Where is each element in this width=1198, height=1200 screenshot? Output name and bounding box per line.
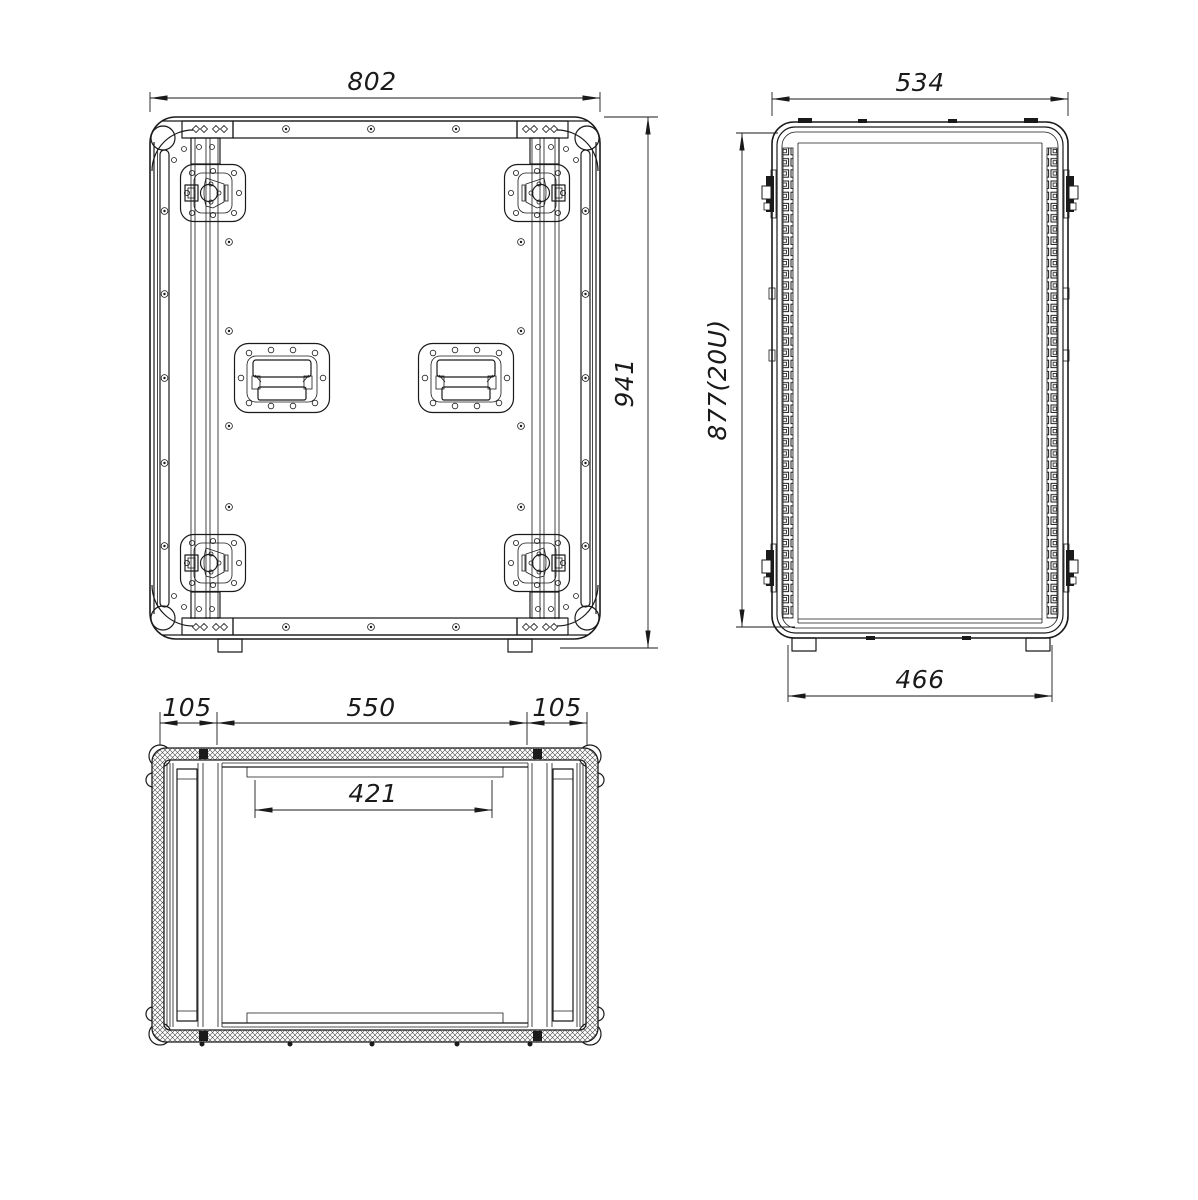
ball-corner-top-right: [517, 121, 599, 171]
side-latch-right-bottom: [1064, 544, 1078, 592]
dim-front-height: 941: [560, 117, 658, 648]
ball-corner-top-left: [151, 121, 233, 171]
ball-corner-bottom-right: [517, 585, 599, 635]
side-foot-right: [1026, 638, 1050, 651]
dim-text-top-rail-span: 421: [348, 779, 397, 808]
dim-side-width: 534: [772, 68, 1068, 116]
front-closure-strips: [191, 138, 559, 619]
recessed-handle-left: [235, 344, 330, 413]
dim-side-height: 877(20U): [703, 133, 795, 627]
front-foot-left: [218, 639, 242, 652]
rack-rail-left: [783, 148, 793, 618]
dim-side-foot-span: 466: [788, 645, 1052, 702]
butterfly-latch-top-left: [181, 165, 246, 222]
dim-text-front-height: 941: [610, 358, 639, 407]
dim-text-side-foot-span: 466: [895, 665, 944, 694]
side-latch-left-top: [762, 170, 776, 218]
recessed-handle-right: [419, 344, 514, 413]
butterfly-latch-bottom-right: [505, 535, 570, 592]
dim-front-width: 802: [150, 67, 600, 112]
butterfly-latch-bottom-left: [181, 535, 246, 592]
side-foot-left: [792, 638, 816, 651]
rack-rail-right: [1047, 148, 1057, 618]
side-latch-left-bottom: [762, 544, 776, 592]
side-view: [762, 118, 1078, 651]
butterfly-latch-top-right: [505, 165, 570, 222]
dim-text-side-width: 534: [895, 68, 944, 97]
front-panel-rivets: [226, 239, 525, 511]
dim-text-side-height: 877(20U): [703, 319, 732, 440]
ball-corner-bottom-left: [151, 585, 233, 635]
dim-text-top-left-wall: 105: [162, 693, 211, 722]
technical-drawing-canvas: 802 941: [0, 0, 1198, 1200]
dim-text-top-right-wall: 105: [532, 693, 581, 722]
drawing-sheet: 802 941: [0, 0, 1198, 1200]
front-edge-strips: [160, 150, 590, 607]
front-bottom-bar: [233, 618, 517, 635]
side-latch-right-top: [1064, 170, 1078, 218]
dim-top-rail-span: 421: [255, 779, 492, 818]
side-tabs: [769, 118, 1069, 640]
dim-top-widths: 105 550 105: [160, 693, 587, 745]
front-view: [150, 117, 600, 652]
front-top-bar: [233, 121, 517, 138]
dim-text-top-opening: 550: [346, 693, 395, 722]
dim-text-front-width: 802: [347, 67, 396, 96]
front-foot-right: [508, 639, 532, 652]
